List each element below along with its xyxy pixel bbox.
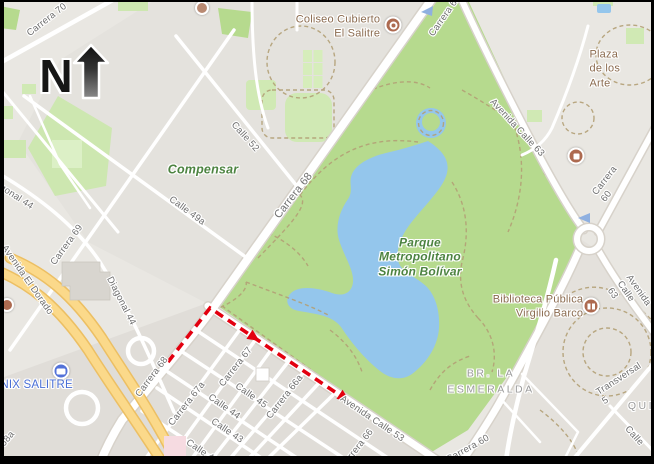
frame-border-bottom	[0, 456, 654, 464]
road-label-avenida-calle-53: Avenida Calle 53	[338, 393, 406, 444]
map-canvas[interactable]: Carrera 70Coliseo Cubierto El SalitreCar…	[0, 0, 654, 464]
hotel-icon[interactable]	[53, 363, 70, 380]
frame-border-top	[0, 0, 654, 2]
road-label-calle-43: Calle 43	[209, 416, 246, 446]
road-label-carrera-67: Carrera 67	[217, 345, 255, 389]
road-label-carrera-70: Carrera 70	[25, 1, 69, 39]
poi-label-coliseo[interactable]: Coliseo Cubierto El Salitre	[296, 13, 381, 42]
road-label-carrera-66a: Carrera 66a	[264, 373, 306, 422]
road-label-calle-44: Calle 44	[206, 392, 242, 422]
road-label-carrera-60-north: Carrera 60	[590, 157, 634, 204]
road-label-diagonal-44-west: Diagonal 44	[0, 174, 35, 212]
road-label-carrera-68-south: Carrera 68	[133, 355, 171, 400]
road-label-transversal-5: Transversal 5	[594, 360, 650, 407]
road-label-calle-52: Calle 52	[229, 120, 262, 155]
poi-dot-icon-north[interactable]	[195, 1, 209, 15]
park-label-simon-bolivar: Parque Metropolitano Simón Bolívar	[378, 235, 461, 278]
road-label-diagonal-44-mid: Diagonal 44	[104, 275, 138, 327]
road-label-calle-49a: Calle 49a	[167, 194, 208, 228]
road-label-avenida-calle-63-north: Avenida Calle 63	[487, 97, 546, 160]
stadium-icon[interactable]	[385, 17, 402, 34]
poi-label-plaza-artesanos[interactable]: Plaza de los Arte	[590, 48, 633, 91]
frame-border-left	[0, 0, 4, 464]
road-label-calle-southeast: Calle	[622, 424, 646, 448]
road-label-carrera-67a: Carrera 67a	[166, 380, 208, 429]
road-label-avenida-calle-63-south: Avenida Calle 63	[605, 273, 653, 322]
library-icon[interactable]	[583, 298, 600, 315]
poi-label-biblioteca[interactable]: Biblioteca Pública Virgilio Barco	[493, 293, 583, 322]
north-letter: N	[39, 53, 72, 99]
road-label-carrera-68-mid: Carrera 68	[272, 170, 316, 221]
park-label-compensar: Compensar	[168, 163, 239, 178]
road-label-carrera-68-top: Carrera 68	[427, 0, 464, 39]
road-label-carrera-69: Carrera 69	[48, 222, 85, 267]
district-label-esmeralda: BR. LA ESMERALDA	[447, 366, 534, 399]
biz-label-onix-salitre[interactable]: ONIX SALITRE	[0, 379, 73, 393]
plaza-poi-icon[interactable]	[568, 148, 585, 165]
north-arrow-icon	[72, 42, 112, 102]
road-label-calle-45: Calle 45	[233, 381, 269, 411]
